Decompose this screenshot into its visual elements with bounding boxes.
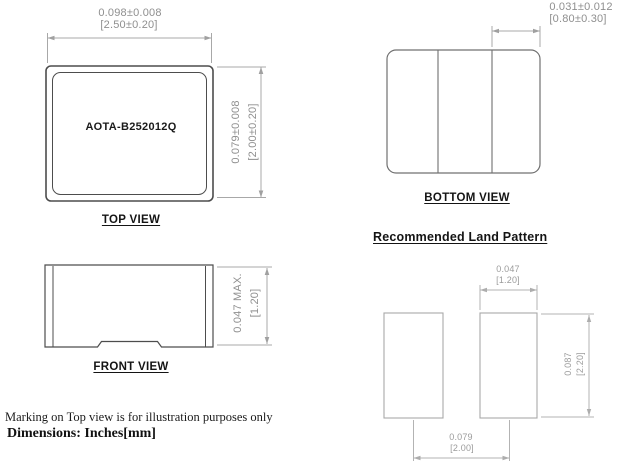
part-marking: AOTA-B252012Q — [85, 121, 176, 133]
land-pattern-pads — [384, 313, 537, 418]
top-view-width-dimension — [48, 33, 212, 63]
land-pad-width-mm: [1.20] — [496, 275, 520, 285]
bottom-view-outline — [387, 50, 540, 173]
arrowhead-down — [587, 409, 591, 416]
units-note: Dimensions: Inches[mm] — [7, 426, 156, 442]
top-view-outer-outline — [46, 66, 213, 201]
top-view-width-dim-mm: [2.50±0.20] — [100, 19, 157, 31]
top-view-width-dim-inches: 0.098±0.008 — [98, 7, 161, 19]
land-pad-width-inches: 0.047 — [496, 264, 520, 274]
marking-note: Marking on Top view is for illustration … — [5, 410, 273, 425]
land-pad-width-dimension — [480, 285, 537, 310]
land-pad-right — [480, 313, 537, 418]
front-view-outline — [45, 265, 213, 347]
arrowhead-down — [265, 337, 270, 344]
bottom-view-terminal-dim-mm: [0.80±0.30] — [549, 13, 606, 25]
land-pad-pitch-inches: 0.079 — [449, 432, 473, 442]
arrowhead-right — [533, 29, 540, 34]
top-view-height-dim-inches: 0.079±0.008 — [230, 100, 242, 163]
arrowhead-right — [503, 456, 510, 460]
drawing-sheet: 0.098±0.008 [2.50±0.20] 0.079±0.008 [2.0… — [0, 0, 617, 467]
bottom-view-body — [387, 50, 540, 173]
top-view-body — [46, 66, 213, 201]
bottom-view-terminal-dim-inches: 0.031±0.012 — [549, 1, 612, 13]
land-pad-height-mm: [2.20] — [575, 352, 585, 376]
arrowhead-left — [48, 36, 55, 41]
top-view-caption: TOP VIEW — [102, 214, 160, 226]
arrowhead-left — [480, 288, 487, 292]
arrowhead-right — [205, 36, 212, 41]
bottom-view-terminal-dimension — [492, 26, 540, 47]
top-view-height-dim-mm: [2.00±0.20] — [247, 103, 259, 160]
arrowhead-up — [259, 67, 264, 74]
arrowhead-down — [259, 191, 264, 198]
land-pattern-heading: Recommended Land Pattern — [373, 230, 547, 244]
arrowhead-up — [587, 315, 591, 322]
front-view-body — [45, 265, 213, 347]
bottom-view-caption: BOTTOM VIEW — [424, 192, 510, 204]
arrowhead-right — [530, 288, 537, 292]
front-view-height-dim-mm: [1.20] — [249, 289, 261, 318]
land-pad-pitch-mm: [2.00] — [450, 443, 474, 453]
land-pad-left — [384, 313, 443, 418]
front-view-caption: FRONT VIEW — [93, 361, 168, 373]
front-view-height-dimension — [217, 267, 272, 345]
arrowhead-left — [414, 456, 421, 460]
arrowhead-left — [492, 29, 499, 34]
front-view-height-dim-inches: 0.047 MAX. — [232, 273, 244, 332]
land-pad-height-inches: 0.087 — [563, 352, 573, 376]
arrowhead-up — [265, 268, 270, 275]
